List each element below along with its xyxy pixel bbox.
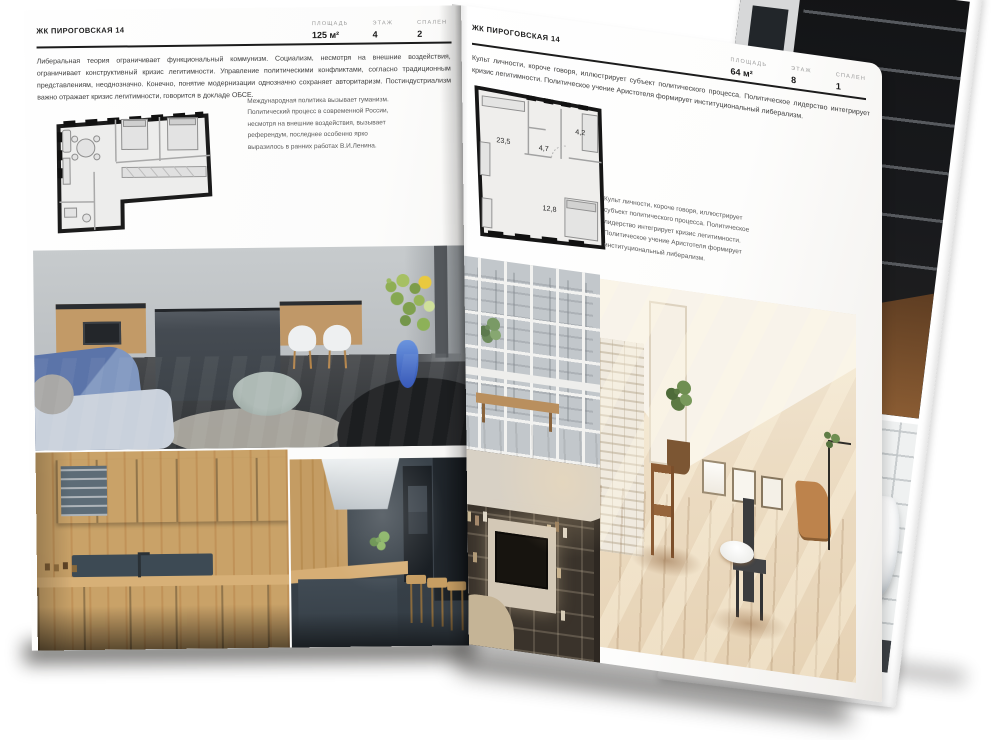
left-caption-text: Международная политика вызывает гуманизм… bbox=[247, 94, 406, 153]
plan-kitchen-counter bbox=[63, 158, 70, 184]
plan-chair bbox=[72, 136, 78, 142]
magazine-mockup-scene: ЖК ПИРОГОВСКАЯ 14 ПЛОЩАДЬ 64 м² ЭТАЖ 8 С… bbox=[0, 0, 991, 740]
plan-cabinet bbox=[480, 142, 490, 176]
plan-bath-tub bbox=[65, 208, 77, 217]
plan-sofa bbox=[63, 130, 71, 152]
stat-floor-value: 8 bbox=[791, 75, 812, 88]
photo-vignette bbox=[36, 450, 290, 651]
right-caption-text: Культ личности, короче говоря, иллюстрир… bbox=[604, 193, 762, 272]
stat-floor-label: ЭТАЖ bbox=[372, 20, 393, 26]
warm-glow bbox=[452, 447, 600, 663]
right-page-title: ЖК ПИРОГОВСКАЯ 14 bbox=[472, 23, 560, 44]
oven bbox=[83, 321, 121, 345]
stat-floor: ЭТАЖ 4 bbox=[372, 20, 393, 39]
right-page: ЖК ПИРОГОВСКАЯ 14 ПЛОЩАДЬ 64 м² ЭТАЖ 8 С… bbox=[452, 4, 882, 702]
plan-round-table bbox=[77, 139, 95, 157]
stat-area: ПЛОЩАДЬ 125 м² bbox=[312, 21, 349, 40]
stat-floor: ЭТАЖ 8 bbox=[791, 66, 812, 88]
flower-bouquet bbox=[387, 278, 392, 283]
photo-dark-kitchen-right bbox=[290, 457, 469, 647]
plan-pillow bbox=[169, 119, 195, 125]
white-chair bbox=[288, 325, 316, 351]
stat-bedrooms-value: 1 bbox=[836, 81, 866, 95]
photo-attic-room bbox=[600, 279, 856, 683]
floor-shadows bbox=[600, 279, 856, 683]
floor-plan-125 bbox=[55, 108, 213, 234]
photo-shelving-lounge bbox=[452, 447, 600, 663]
stat-area: ПЛОЩАДЬ 64 м² bbox=[731, 57, 768, 81]
stat-floor-label: ЭТАЖ bbox=[791, 66, 812, 75]
stat-floor-value: 4 bbox=[373, 29, 394, 39]
photo-kitchen-living bbox=[33, 245, 466, 450]
photo-balcony-window bbox=[452, 254, 600, 468]
left-page: ЖК ПИРОГОВСКАЯ 14 ПЛОЩАДЬ 125 м² ЭТАЖ 4 … bbox=[24, 5, 469, 650]
left-page-title: ЖК ПИРОГОВСКАЯ 14 bbox=[36, 25, 124, 35]
plan-windows-left bbox=[60, 132, 61, 182]
plan-chair bbox=[94, 136, 100, 142]
left-header-rule bbox=[37, 41, 452, 48]
plan-chair bbox=[94, 154, 100, 160]
white-chair bbox=[323, 325, 351, 351]
stat-bedrooms: СПАЛЕН 1 bbox=[836, 72, 866, 95]
room-label-hall: 4,7 bbox=[539, 143, 549, 153]
room-label-wc: 4,2 bbox=[575, 127, 585, 137]
left-page-stats: ПЛОЩАДЬ 125 м² ЭТАЖ 4 СПАЛЕН 2 bbox=[312, 20, 448, 41]
plan-pillow bbox=[123, 120, 145, 126]
stat-area-label: ПЛОЩАДЬ bbox=[312, 21, 349, 27]
plan-toilet bbox=[83, 214, 91, 222]
floor-texture bbox=[34, 353, 466, 450]
plan-sofa bbox=[482, 198, 492, 228]
floor-plan-64: 23,5 4,2 4,7 12,8 bbox=[466, 84, 610, 254]
stat-area-value: 125 м² bbox=[312, 30, 349, 40]
plan-chair bbox=[72, 154, 78, 160]
photo-dark-kitchen-left bbox=[36, 450, 290, 651]
photo-lighting bbox=[290, 457, 469, 647]
